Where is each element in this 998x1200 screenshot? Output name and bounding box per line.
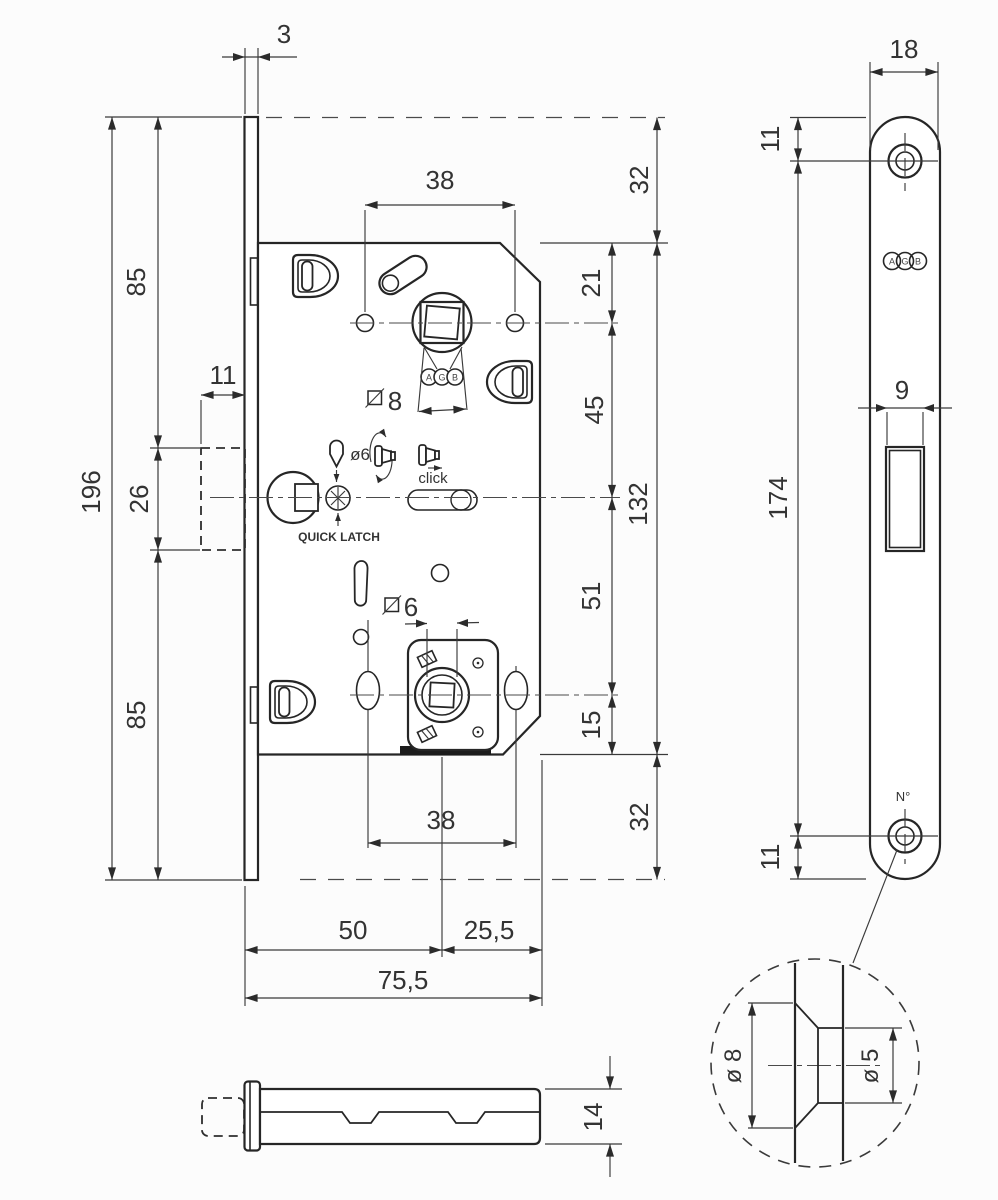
dim-label: 174 [763, 476, 793, 519]
side-view-faceplate: N° A G B 18 11 [755, 34, 952, 963]
dim-label: 11 [210, 360, 237, 390]
detail-leader-line [853, 850, 897, 963]
dim-label: 21 [576, 269, 606, 298]
dim-label: 26 [124, 485, 154, 514]
pin-hole-label: ø6 [350, 445, 370, 464]
mount-hole-top-left [293, 255, 338, 297]
case-bottom-outline [260, 1089, 540, 1144]
dim-label: 196 [76, 470, 106, 513]
mount-hole-bottom-left [270, 681, 315, 723]
faceplate-front [245, 117, 259, 880]
small-hole-above-wc [432, 565, 449, 582]
brand-letter: G [901, 257, 908, 267]
oblong-hole-right [505, 672, 528, 710]
dim-label: ø 5 [857, 1049, 884, 1084]
dim-label: 3 [277, 19, 291, 49]
faceplate-end [245, 1082, 261, 1151]
square-section-symbol [366, 389, 385, 408]
dim-label: 38 [427, 805, 456, 835]
quick-latch-label: QUICK LATCH [298, 530, 380, 544]
latch-bolt-dashed-bottom [202, 1098, 244, 1136]
dim-label: 51 [576, 582, 606, 611]
small-hole-lower-left [354, 630, 369, 645]
mount-hole-mid-right [487, 361, 532, 403]
adjuster-slot [408, 490, 477, 510]
dim-faceplate-height-196: 196 [76, 117, 242, 880]
serial-mark-label: N° [896, 789, 911, 804]
dim-label: ø 8 [720, 1049, 747, 1084]
dim-label: 11 [755, 844, 785, 871]
technical-drawing-page: A G B 8 ø6 [0, 0, 998, 1200]
brand-letter: B [452, 373, 458, 383]
bottom-view: 14 [202, 1056, 622, 1177]
brand-letter: A [426, 373, 432, 383]
dim-label: 50 [339, 915, 368, 945]
dim-label: 132 [623, 482, 653, 525]
dim-label: 15 [576, 711, 606, 740]
dim-case-thickness-14: 14 [545, 1056, 622, 1177]
dim-left-chain-85-26-85: 85 26 85 [121, 117, 200, 880]
brand-letter: A [889, 257, 895, 267]
square-section-symbol [383, 596, 402, 615]
dim-label: 11 [755, 126, 785, 153]
click-label: click [418, 470, 448, 487]
detail-view-countersink: ø 8 ø 5 [711, 959, 919, 1167]
dim-label: 85 [121, 701, 151, 730]
dim-latch-protrusion-11: 11 [201, 360, 245, 444]
brand-letter: B [915, 257, 921, 267]
dim-label: 32 [624, 166, 654, 195]
dim-label: 25,5 [464, 915, 515, 945]
dim-label: 32 [624, 803, 654, 832]
dim-label: 14 [578, 1103, 608, 1132]
dim-label: 18 [890, 34, 919, 64]
brand-letter: G [438, 373, 445, 383]
dim-label: 45 [579, 396, 609, 425]
dim-label: 75,5 [378, 965, 429, 995]
dim-label: 85 [121, 268, 151, 297]
dim-backset-50-255-755: 50 25,5 75,5 [245, 760, 542, 1006]
oblong-hole-left [357, 672, 380, 710]
latch-window [886, 447, 924, 551]
lock-technical-drawing: A G B 8 ø6 [0, 0, 998, 1200]
dim-label: 9 [895, 375, 909, 405]
dim-faceplate-thickness-3: 3 [222, 19, 297, 114]
dim-label: 8 [388, 386, 402, 416]
dim-label: 38 [426, 165, 455, 195]
dim-label: 6 [404, 592, 418, 622]
latch-bolt-dashed [201, 448, 245, 550]
teardrop-slot [354, 561, 367, 606]
